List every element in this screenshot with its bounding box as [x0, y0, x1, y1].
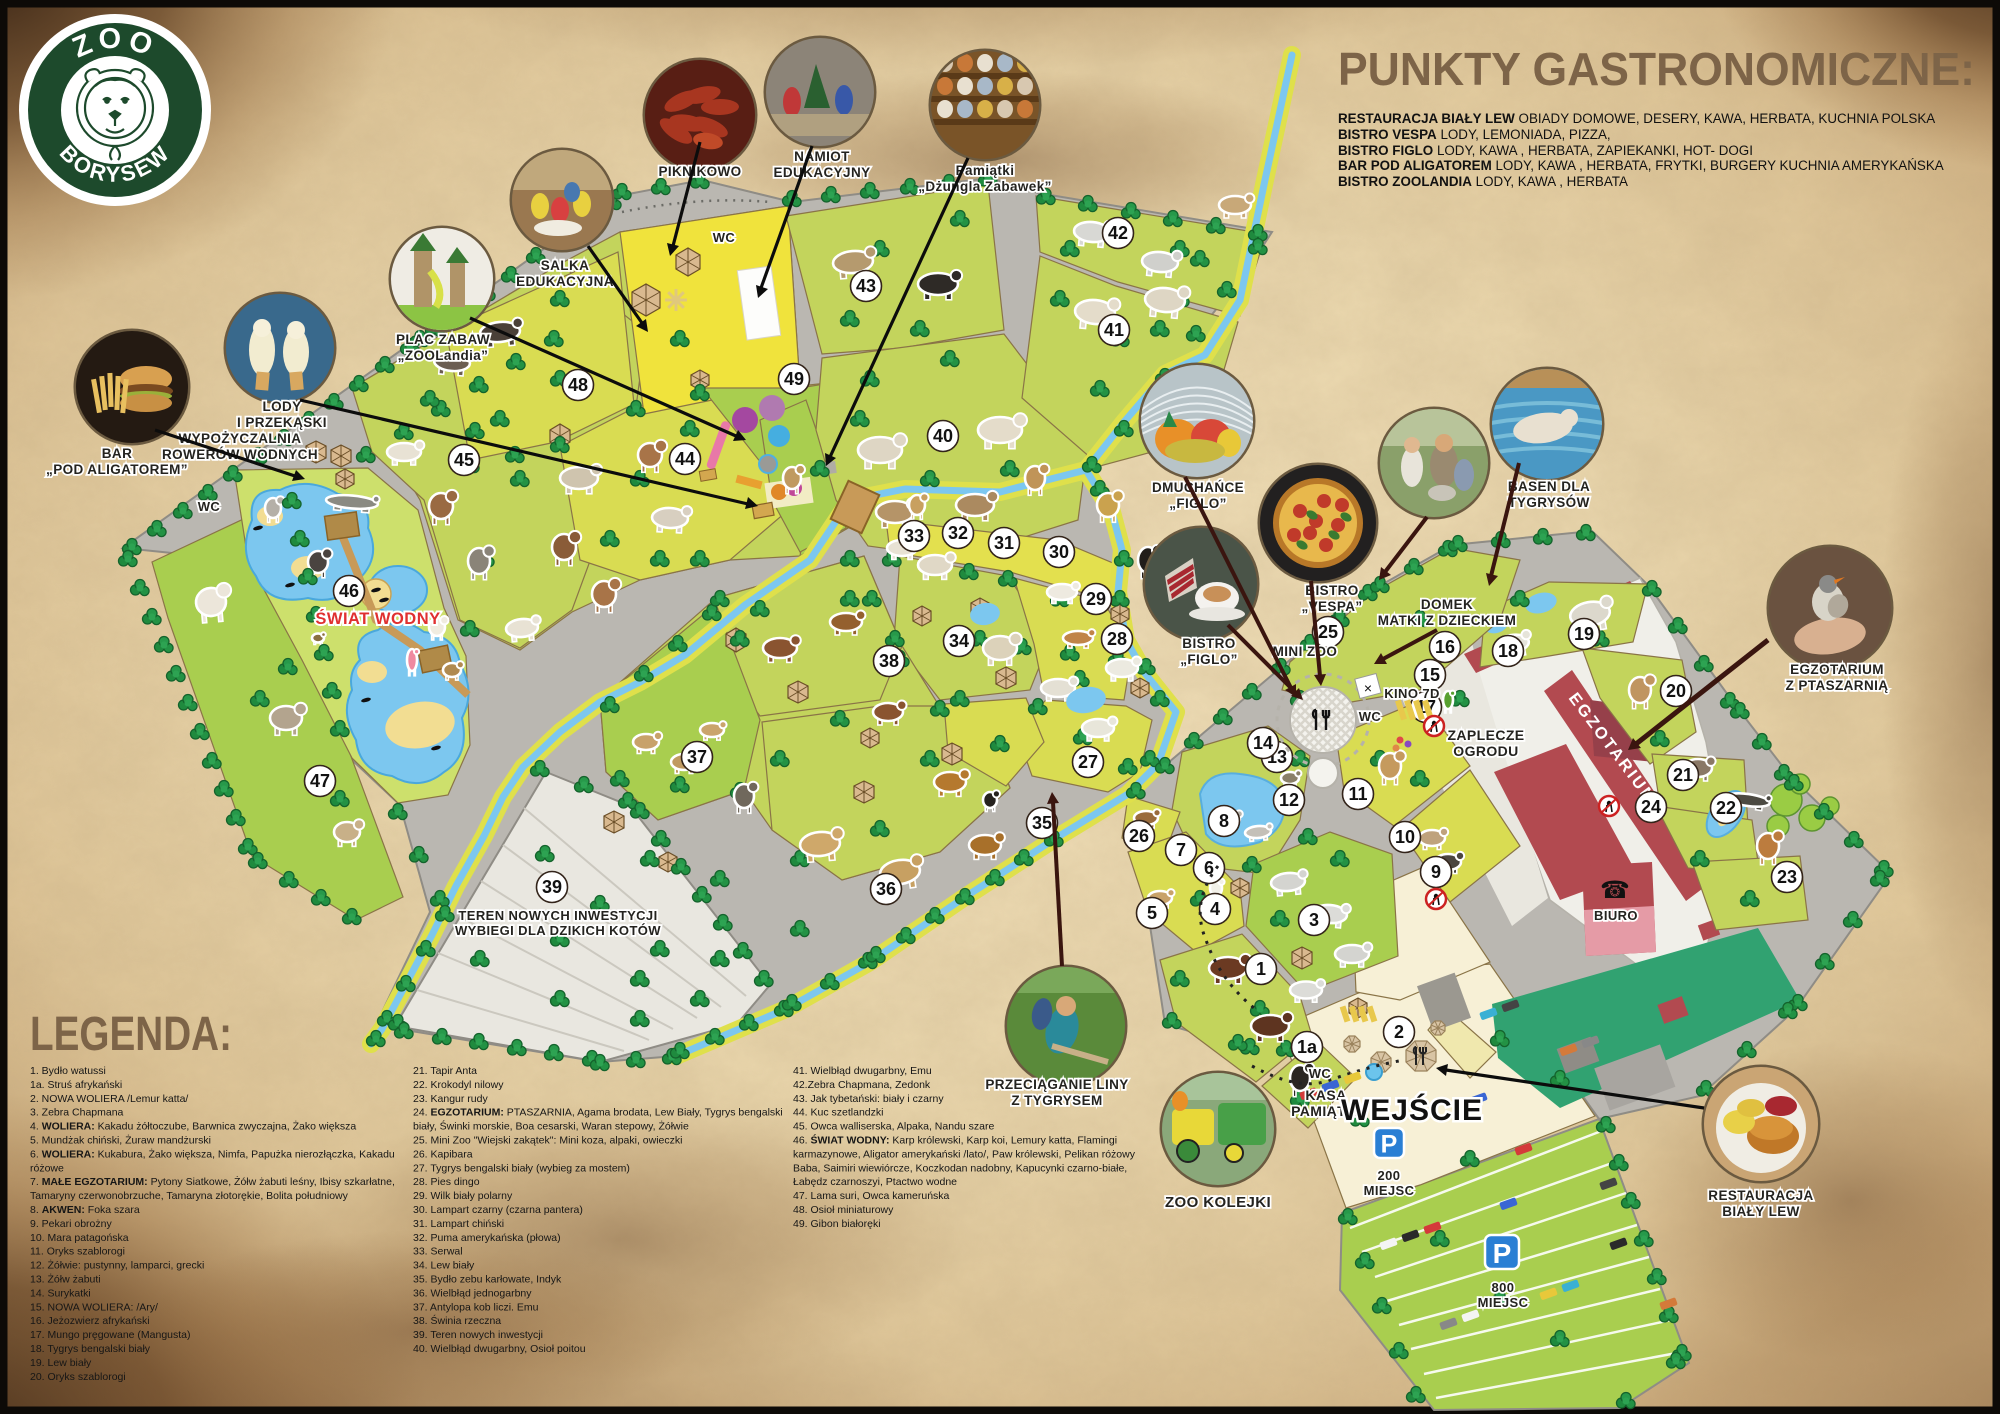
- svg-text:35: 35: [1032, 813, 1052, 833]
- svg-text:6. WOLIERA: Kukabura, Żako wię: 6. WOLIERA: Kukabura, Żako większa, Nimf…: [30, 1147, 395, 1160]
- svg-text:18. Tygrys bengalski biały: 18. Tygrys bengalski biały: [30, 1343, 151, 1355]
- svg-text:24: 24: [1641, 797, 1661, 817]
- svg-text:ROWERÓW WODNYCH: ROWERÓW WODNYCH: [162, 447, 318, 462]
- svg-text:30: 30: [1049, 542, 1069, 562]
- svg-text:5: 5: [1147, 903, 1157, 923]
- svg-text:9. Pekari obrożny: 9. Pekari obrożny: [30, 1218, 112, 1230]
- svg-text:41: 41: [1104, 320, 1124, 340]
- svg-text:36: 36: [876, 879, 896, 899]
- svg-text:21. Tapir Anta: 21. Tapir Anta: [413, 1065, 477, 1077]
- svg-text:BISTRO FIGLO LODY, KAWA , HERB: BISTRO FIGLO LODY, KAWA , HERBATA, ZAPIE…: [1338, 143, 1753, 158]
- svg-text:23: 23: [1777, 867, 1797, 887]
- svg-text:26: 26: [1129, 826, 1149, 846]
- svg-text:12. Żółwie: pustynny, lamparci: 12. Żółwie: pustynny, lamparci, grecki: [30, 1259, 204, 1272]
- svg-text:26. Kapibara: 26. Kapibara: [413, 1148, 473, 1160]
- svg-text:47. Lama suri, Owca kameruńska: 47. Lama suri, Owca kameruńska: [793, 1190, 950, 1202]
- svg-text:12: 12: [1279, 790, 1299, 810]
- svg-text:„Dżungla Zabawek”: „Dżungla Zabawek”: [918, 179, 1052, 194]
- svg-text:ŚWIAT WODNY: ŚWIAT WODNY: [315, 609, 440, 628]
- svg-text:46. ŚWIAT WODNY: Karp królew: 46. ŚWIAT WODNY: Karp królewski, Karp ko…: [793, 1134, 1117, 1147]
- svg-text:karmazynowe, Aligator amerykań: karmazynowe, Aligator amerykański /lato/…: [793, 1148, 1136, 1160]
- svg-text:ZAPLECZE: ZAPLECZE: [1447, 727, 1524, 743]
- svg-text:EDUKACYJNA: EDUKACYJNA: [516, 274, 614, 289]
- svg-text:BAR: BAR: [102, 446, 132, 461]
- svg-text:MATKI Z DZIECKIEM: MATKI Z DZIECKIEM: [1378, 613, 1517, 628]
- svg-text:1. Bydło watussi: 1. Bydło watussi: [30, 1065, 106, 1077]
- svg-text:40. Wielbłąd dwugarbny, Osioł: 40. Wielbłąd dwugarbny, Osioł poitou: [413, 1343, 586, 1355]
- svg-text:P: P: [1381, 1131, 1398, 1159]
- svg-text:28: 28: [1107, 629, 1127, 649]
- svg-text:37. Antylopa kob liczi. Emu: 37. Antylopa kob liczi. Emu: [413, 1301, 539, 1313]
- svg-text:SALKA: SALKA: [541, 258, 590, 273]
- svg-text:biały, Świnki morskie, Boa ces: biały, Świnki morskie, Boa cesarski, War…: [413, 1120, 689, 1133]
- svg-text:11. Oryks szablorogi: 11. Oryks szablorogi: [30, 1246, 125, 1258]
- svg-text:11: 11: [1348, 784, 1367, 804]
- svg-text:40: 40: [933, 426, 953, 446]
- svg-text:14. Surykatki: 14. Surykatki: [30, 1287, 91, 1299]
- svg-text:8. AKWEN: Foka szara: 8. AKWEN: Foka szara: [30, 1204, 140, 1216]
- svg-text:42.Zebra Chapmana, Zedonk: 42.Zebra Chapmana, Zedonk: [793, 1079, 931, 1091]
- svg-text:10. Mara patagońska: 10. Mara patagońska: [30, 1232, 129, 1244]
- svg-text:43: 43: [856, 276, 876, 296]
- svg-text:45. Owca walliserska, Alpaka,: 45. Owca walliserska, Alpaka, Nandu szar…: [793, 1121, 995, 1133]
- svg-text:24. EGZOTARIUM: PTASZARNIA, Ag: 24. EGZOTARIUM: PTASZARNIA, Agama brodat…: [413, 1107, 783, 1119]
- svg-text:14: 14: [1253, 733, 1273, 753]
- svg-text:25: 25: [1318, 622, 1338, 642]
- svg-text:200: 200: [1378, 1168, 1401, 1183]
- svg-text:„FIGLO”: „FIGLO”: [1180, 652, 1238, 667]
- svg-text:1a: 1a: [1297, 1037, 1318, 1057]
- svg-text:NAMIOT: NAMIOT: [794, 149, 850, 164]
- svg-text:TEREN NOWYCH INWESTYCJI: TEREN NOWYCH INWESTYCJI: [458, 908, 657, 923]
- svg-text:29: 29: [1086, 589, 1106, 609]
- svg-text:1: 1: [1256, 959, 1266, 979]
- svg-text:36. Wielbłąd jednogarbny: 36. Wielbłąd jednogarbny: [413, 1287, 532, 1299]
- svg-text:różowe: różowe: [30, 1162, 64, 1174]
- svg-text:PRZECIĄGANIE LINY: PRZECIĄGANIE LINY: [985, 1077, 1128, 1092]
- svg-text:34. Lew biały: 34. Lew biały: [413, 1260, 475, 1272]
- svg-text:EDUKACYJNY: EDUKACYJNY: [773, 165, 870, 180]
- svg-text:30. Lampart czarny (czarna pan: 30. Lampart czarny (czarna pantera): [413, 1204, 583, 1216]
- svg-text:1a. Struś afrykański: 1a. Struś afrykański: [30, 1079, 122, 1091]
- svg-text:WC: WC: [198, 499, 221, 514]
- svg-text:RESTAURACJA: RESTAURACJA: [1708, 1188, 1813, 1203]
- svg-text:19. Lew biały: 19. Lew biały: [30, 1357, 92, 1369]
- svg-text:44. Kuc szetlandzki: 44. Kuc szetlandzki: [793, 1107, 883, 1119]
- svg-text:BIURO: BIURO: [1594, 908, 1638, 923]
- svg-text:WC: WC: [1359, 709, 1382, 724]
- svg-text:MIEJSC: MIEJSC: [1364, 1183, 1415, 1198]
- svg-text:9: 9: [1431, 862, 1441, 882]
- svg-text:Tamaryny czerwonobrzuche, Tama: Tamaryny czerwonobrzuche, Tamaryna złoto…: [30, 1190, 349, 1202]
- svg-text:49: 49: [784, 369, 804, 389]
- svg-text:46: 46: [339, 581, 359, 601]
- svg-text:WEJŚCIE: WEJŚCIE: [1341, 1093, 1483, 1127]
- svg-text:4. WOLIERA: Kakadu żółtoczube: 4. WOLIERA: Kakadu żółtoczube, Barwnica …: [30, 1120, 356, 1133]
- svg-text:BIAŁY LEW: BIAŁY LEW: [1722, 1204, 1800, 1219]
- svg-text:15. NOWA WOLIERA: /Ary/: 15. NOWA WOLIERA: /Ary/: [30, 1301, 158, 1313]
- svg-text:37: 37: [687, 747, 707, 767]
- svg-text:ZOO KOLEJKI: ZOO KOLEJKI: [1165, 1194, 1271, 1211]
- svg-text:800: 800: [1492, 1280, 1515, 1295]
- svg-text:29. Wilk biały polarny: 29. Wilk biały polarny: [413, 1190, 513, 1202]
- svg-text:43. Jak tybetański: biały i cz: 43. Jak tybetański: biały i czarny: [793, 1093, 944, 1105]
- svg-text:EGZOTARIUM: EGZOTARIUM: [1790, 662, 1884, 677]
- svg-text:13. Żółw żabuti: 13. Żółw żabuti: [30, 1273, 101, 1286]
- svg-text:TYGRYSÓW: TYGRYSÓW: [1508, 495, 1589, 510]
- svg-text:7. MAŁE EGZOTARIUM: Pytony Sia: 7. MAŁE EGZOTARIUM: Pytony Siatkowe, Żół…: [30, 1175, 395, 1188]
- svg-text:32: 32: [948, 523, 968, 543]
- svg-text:Z PTASZARNIĄ: Z PTASZARNIĄ: [1786, 678, 1889, 693]
- svg-text:3. Zebra Chapmana: 3. Zebra Chapmana: [30, 1107, 124, 1119]
- svg-text:Baba, Saimiri wiewiórcze, Kocz: Baba, Saimiri wiewiórcze, Koczkodan nado…: [793, 1162, 1127, 1174]
- svg-text:PUNKTY GASTRONOMICZNE:: PUNKTY GASTRONOMICZNE:: [1338, 43, 1975, 95]
- svg-text:„VESPA”: „VESPA”: [1301, 599, 1362, 614]
- svg-text:21: 21: [1673, 765, 1693, 785]
- svg-text:20. Oryks szablorogi: 20. Oryks szablorogi: [30, 1371, 126, 1383]
- svg-text:39. Teren nowych inwestycji: 39. Teren nowych inwestycji: [413, 1329, 543, 1341]
- svg-text:×: ×: [1364, 680, 1372, 696]
- svg-text:18: 18: [1498, 641, 1518, 661]
- svg-text:LODY: LODY: [262, 399, 301, 414]
- svg-text:WC: WC: [1309, 1066, 1332, 1081]
- svg-text:22. Krokodyl nilowy: 22. Krokodyl nilowy: [413, 1079, 504, 1091]
- svg-text:RESTAURACJA BIAŁY LEW OBIADY D: RESTAURACJA BIAŁY LEW OBIADY DOMOWE, DES…: [1338, 111, 1935, 126]
- svg-text:48. Osioł miniaturowy: 48. Osioł miniaturowy: [793, 1204, 894, 1216]
- svg-text:38. Świnia rzeczna: 38. Świnia rzeczna: [413, 1314, 501, 1327]
- svg-text:33. Serwal: 33. Serwal: [413, 1246, 463, 1258]
- svg-text:I PRZEKĄSKI: I PRZEKĄSKI: [237, 415, 327, 430]
- svg-text:MIEJSC: MIEJSC: [1478, 1295, 1529, 1310]
- svg-text:BISTRO VESPA LODY, LEMONIADA,: BISTRO VESPA LODY, LEMONIADA, PIZZA,: [1338, 127, 1611, 142]
- svg-text:42: 42: [1108, 223, 1128, 243]
- svg-text:PIKNIKOWO: PIKNIKOWO: [658, 164, 741, 179]
- svg-text:2. NOWA WOLIERA /Lemur katta/: 2. NOWA WOLIERA /Lemur katta/: [30, 1093, 188, 1105]
- svg-text:„ZOOLandia”: „ZOOLandia”: [398, 348, 489, 363]
- svg-text:BASEN DLA: BASEN DLA: [1508, 479, 1590, 494]
- svg-text:20: 20: [1666, 681, 1686, 701]
- svg-text:19: 19: [1574, 624, 1594, 644]
- svg-text:PLAC ZABAW: PLAC ZABAW: [396, 332, 490, 347]
- svg-text:16: 16: [1435, 637, 1455, 657]
- svg-text:4: 4: [1210, 899, 1220, 919]
- svg-text:32. Puma amerykańska (płowa): 32. Puma amerykańska (płowa): [413, 1232, 561, 1244]
- svg-text:35. Bydło zebu karłowate, Indy: 35. Bydło zebu karłowate, Indyk: [413, 1274, 562, 1286]
- svg-text:25. Mini Zoo "Wiejski zakątek": 25. Mini Zoo "Wiejski zakątek": Mini koz…: [413, 1135, 682, 1147]
- svg-text:BISTRO ZOOLANDIA LODY, KAWA ,: BISTRO ZOOLANDIA LODY, KAWA , HERBATA: [1338, 174, 1628, 189]
- svg-text:Łabędz czarnoszyi, Ptactwo wod: Łabędz czarnoszyi, Ptactwo wodne: [793, 1176, 957, 1188]
- svg-text:34: 34: [949, 631, 969, 651]
- svg-text:33: 33: [904, 526, 924, 546]
- svg-text:P: P: [1493, 1238, 1512, 1269]
- svg-text:„POD ALIGATOREM”: „POD ALIGATOREM”: [46, 462, 188, 477]
- svg-text:DMUCHAŃCE: DMUCHAŃCE: [1152, 480, 1244, 495]
- svg-text:OGRODU: OGRODU: [1453, 743, 1518, 759]
- svg-text:☎: ☎: [1600, 877, 1630, 904]
- svg-text:10: 10: [1395, 827, 1415, 847]
- svg-text:8: 8: [1219, 811, 1229, 831]
- svg-text:22: 22: [1716, 798, 1736, 818]
- svg-text:DOMEK: DOMEK: [1421, 597, 1473, 612]
- svg-text:3: 3: [1309, 910, 1319, 930]
- svg-text:2: 2: [1394, 1022, 1404, 1042]
- svg-text:BAR POD ALIGATOREM LODY, KAWA: BAR POD ALIGATOREM LODY, KAWA , HERBATA,…: [1338, 158, 1944, 173]
- svg-text:5. Mundżak chiński, Żuraw mand: 5. Mundżak chiński, Żuraw mandżurski: [30, 1134, 211, 1147]
- svg-text:27. Tygrys bengalski biały (wy: 27. Tygrys bengalski biały (wybieg za mo…: [413, 1162, 630, 1174]
- svg-text:BISTRO: BISTRO: [1182, 636, 1235, 651]
- svg-text:28. Pies dingo: 28. Pies dingo: [413, 1176, 480, 1188]
- svg-text:KINO 7D: KINO 7D: [1384, 686, 1440, 701]
- svg-text:23. Kangur rudy: 23. Kangur rudy: [413, 1093, 488, 1105]
- svg-text:17. Mungo pręgowane (Mangusta): 17. Mungo pręgowane (Mangusta): [30, 1329, 191, 1341]
- svg-text:31. Lampart chiński: 31. Lampart chiński: [413, 1218, 504, 1230]
- svg-text:41. Wielbłąd dwugarbny, Emu: 41. Wielbłąd dwugarbny, Emu: [793, 1065, 932, 1077]
- svg-text:27: 27: [1078, 752, 1098, 772]
- svg-text:49. Gibon białoręki: 49. Gibon białoręki: [793, 1218, 881, 1230]
- svg-text:48: 48: [568, 375, 588, 395]
- svg-text:44: 44: [675, 449, 695, 469]
- svg-text:WC: WC: [713, 230, 736, 245]
- svg-text:LEGENDA:: LEGENDA:: [30, 1008, 232, 1061]
- svg-text:38: 38: [879, 651, 899, 671]
- svg-text:WYBIEGI DLA DZIKICH KOTÓW: WYBIEGI DLA DZIKICH KOTÓW: [455, 923, 661, 938]
- svg-text:31: 31: [994, 533, 1014, 553]
- svg-text:47: 47: [310, 771, 330, 791]
- svg-text:MINI ZOO: MINI ZOO: [1273, 644, 1338, 659]
- svg-text:15: 15: [1420, 665, 1440, 685]
- svg-text:7: 7: [1176, 840, 1186, 860]
- svg-text:Z TYGRYSEM: Z TYGRYSEM: [1011, 1093, 1102, 1108]
- svg-text:39: 39: [542, 877, 562, 897]
- svg-text:45: 45: [454, 450, 474, 470]
- svg-text:16. Jeżozwierz afrykański: 16. Jeżozwierz afrykański: [30, 1315, 150, 1327]
